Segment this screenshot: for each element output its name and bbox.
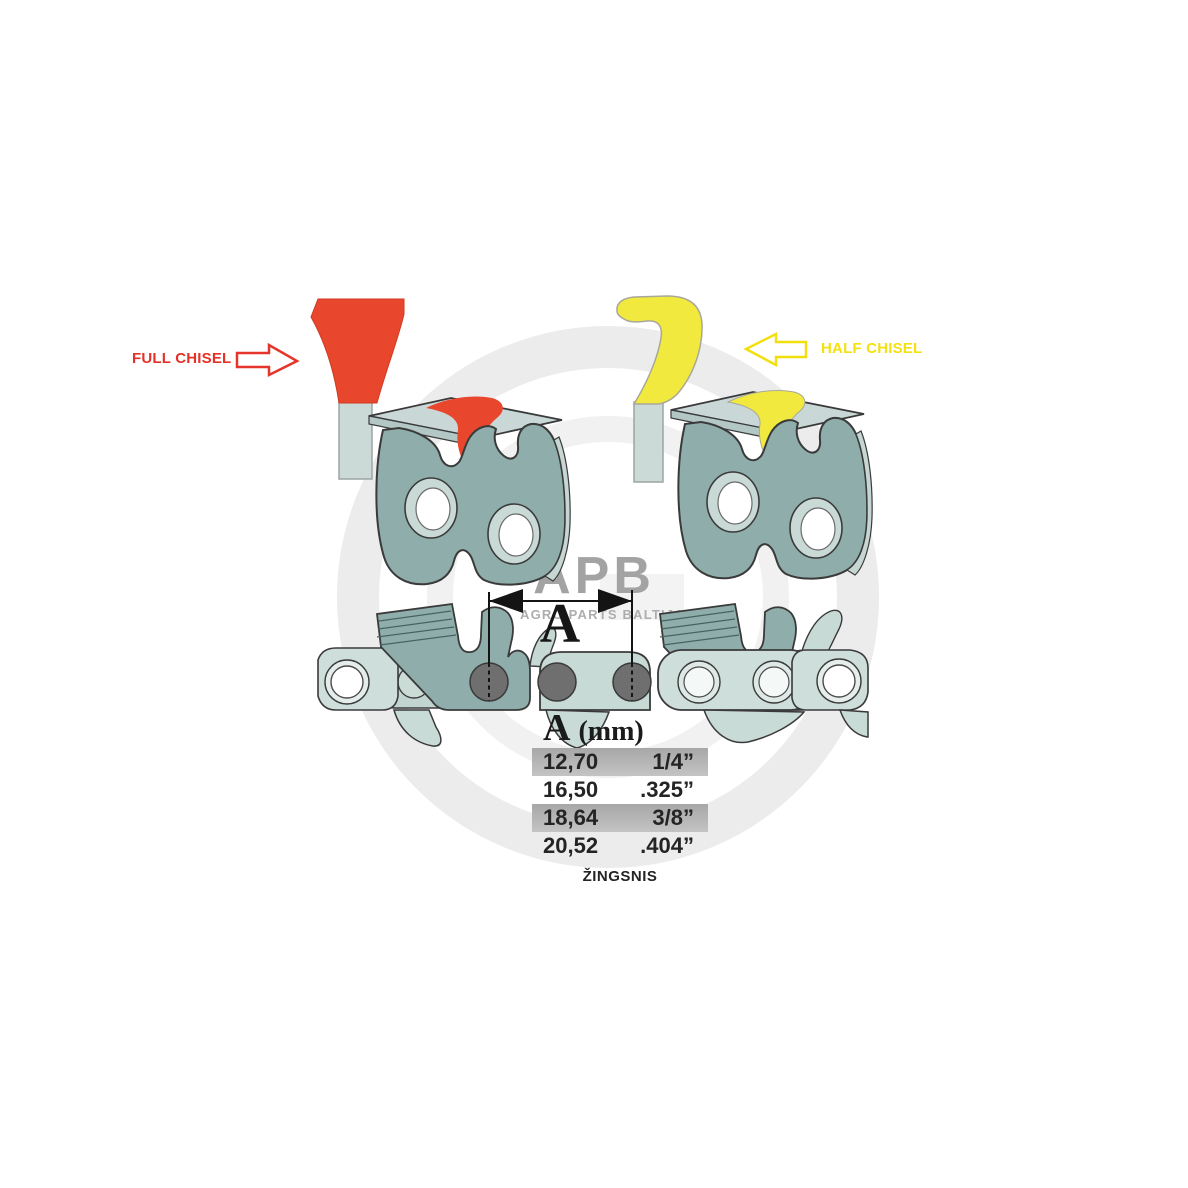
chain-link-horn <box>802 610 842 653</box>
pitch-inch-value: 3/8” <box>652 805 694 831</box>
cutter-link-half-chisel <box>671 390 872 578</box>
full-chisel-arrow-icon <box>237 345 297 375</box>
pitch-table-row: 16,50 .325” <box>532 776 708 804</box>
pitch-dimension-letter: A <box>528 596 592 652</box>
half-chisel-shank <box>634 402 663 482</box>
half-chisel-corner-shape <box>617 296 702 404</box>
full-chisel-label: FULL CHISEL <box>132 350 231 367</box>
chain-hole <box>331 666 363 698</box>
diagram-artwork <box>0 0 1188 1188</box>
rivet-hole <box>801 508 835 550</box>
pitch-inch-value: 1/4” <box>652 749 694 775</box>
cutter-link-full-chisel <box>369 396 570 584</box>
rivet-hole <box>718 482 752 524</box>
pitch-table: 12,70 1/4” 16,50 .325” 18,64 3/8” 20,52 … <box>532 748 708 860</box>
full-chisel-corner-shape <box>311 299 404 403</box>
chain-hole <box>759 667 789 697</box>
chain-drive-tang <box>840 710 868 737</box>
chain-diagram-stage: APB AGRO PARTS BALTIJA <box>0 0 1188 1188</box>
pitch-header-letter: A <box>543 708 570 748</box>
rivet-hole <box>499 514 533 556</box>
pitch-mm-value: 16,50 <box>543 777 598 803</box>
pitch-mm-value: 12,70 <box>543 749 598 775</box>
half-chisel-label: HALF CHISEL <box>821 340 922 357</box>
chain-hole <box>684 667 714 697</box>
chain-drive-tang <box>704 710 804 743</box>
pitch-inch-value: .404” <box>640 833 694 859</box>
pitch-table-header: A (mm) <box>532 708 708 748</box>
pitch-mm-value: 18,64 <box>543 805 598 831</box>
pitch-table-row: 20,52 .404” <box>532 832 708 860</box>
pitch-table-row: 18,64 3/8” <box>532 804 708 832</box>
dimension-arrowhead-right <box>598 589 632 613</box>
pitch-table-row: 12,70 1/4” <box>532 748 708 776</box>
chain-drive-tang <box>394 710 441 746</box>
pitch-mm-value: 20,52 <box>543 833 598 859</box>
full-chisel-shank <box>339 401 372 479</box>
chain-rivet <box>538 663 576 701</box>
pitch-header-unit: (mm) <box>578 716 643 748</box>
chain-hole <box>823 665 855 697</box>
pitch-caption: ŽINGSNIS <box>532 868 708 885</box>
pitch-inch-value: .325” <box>640 777 694 803</box>
half-chisel-arrow-icon <box>746 334 806 365</box>
rivet-hole <box>416 488 450 530</box>
